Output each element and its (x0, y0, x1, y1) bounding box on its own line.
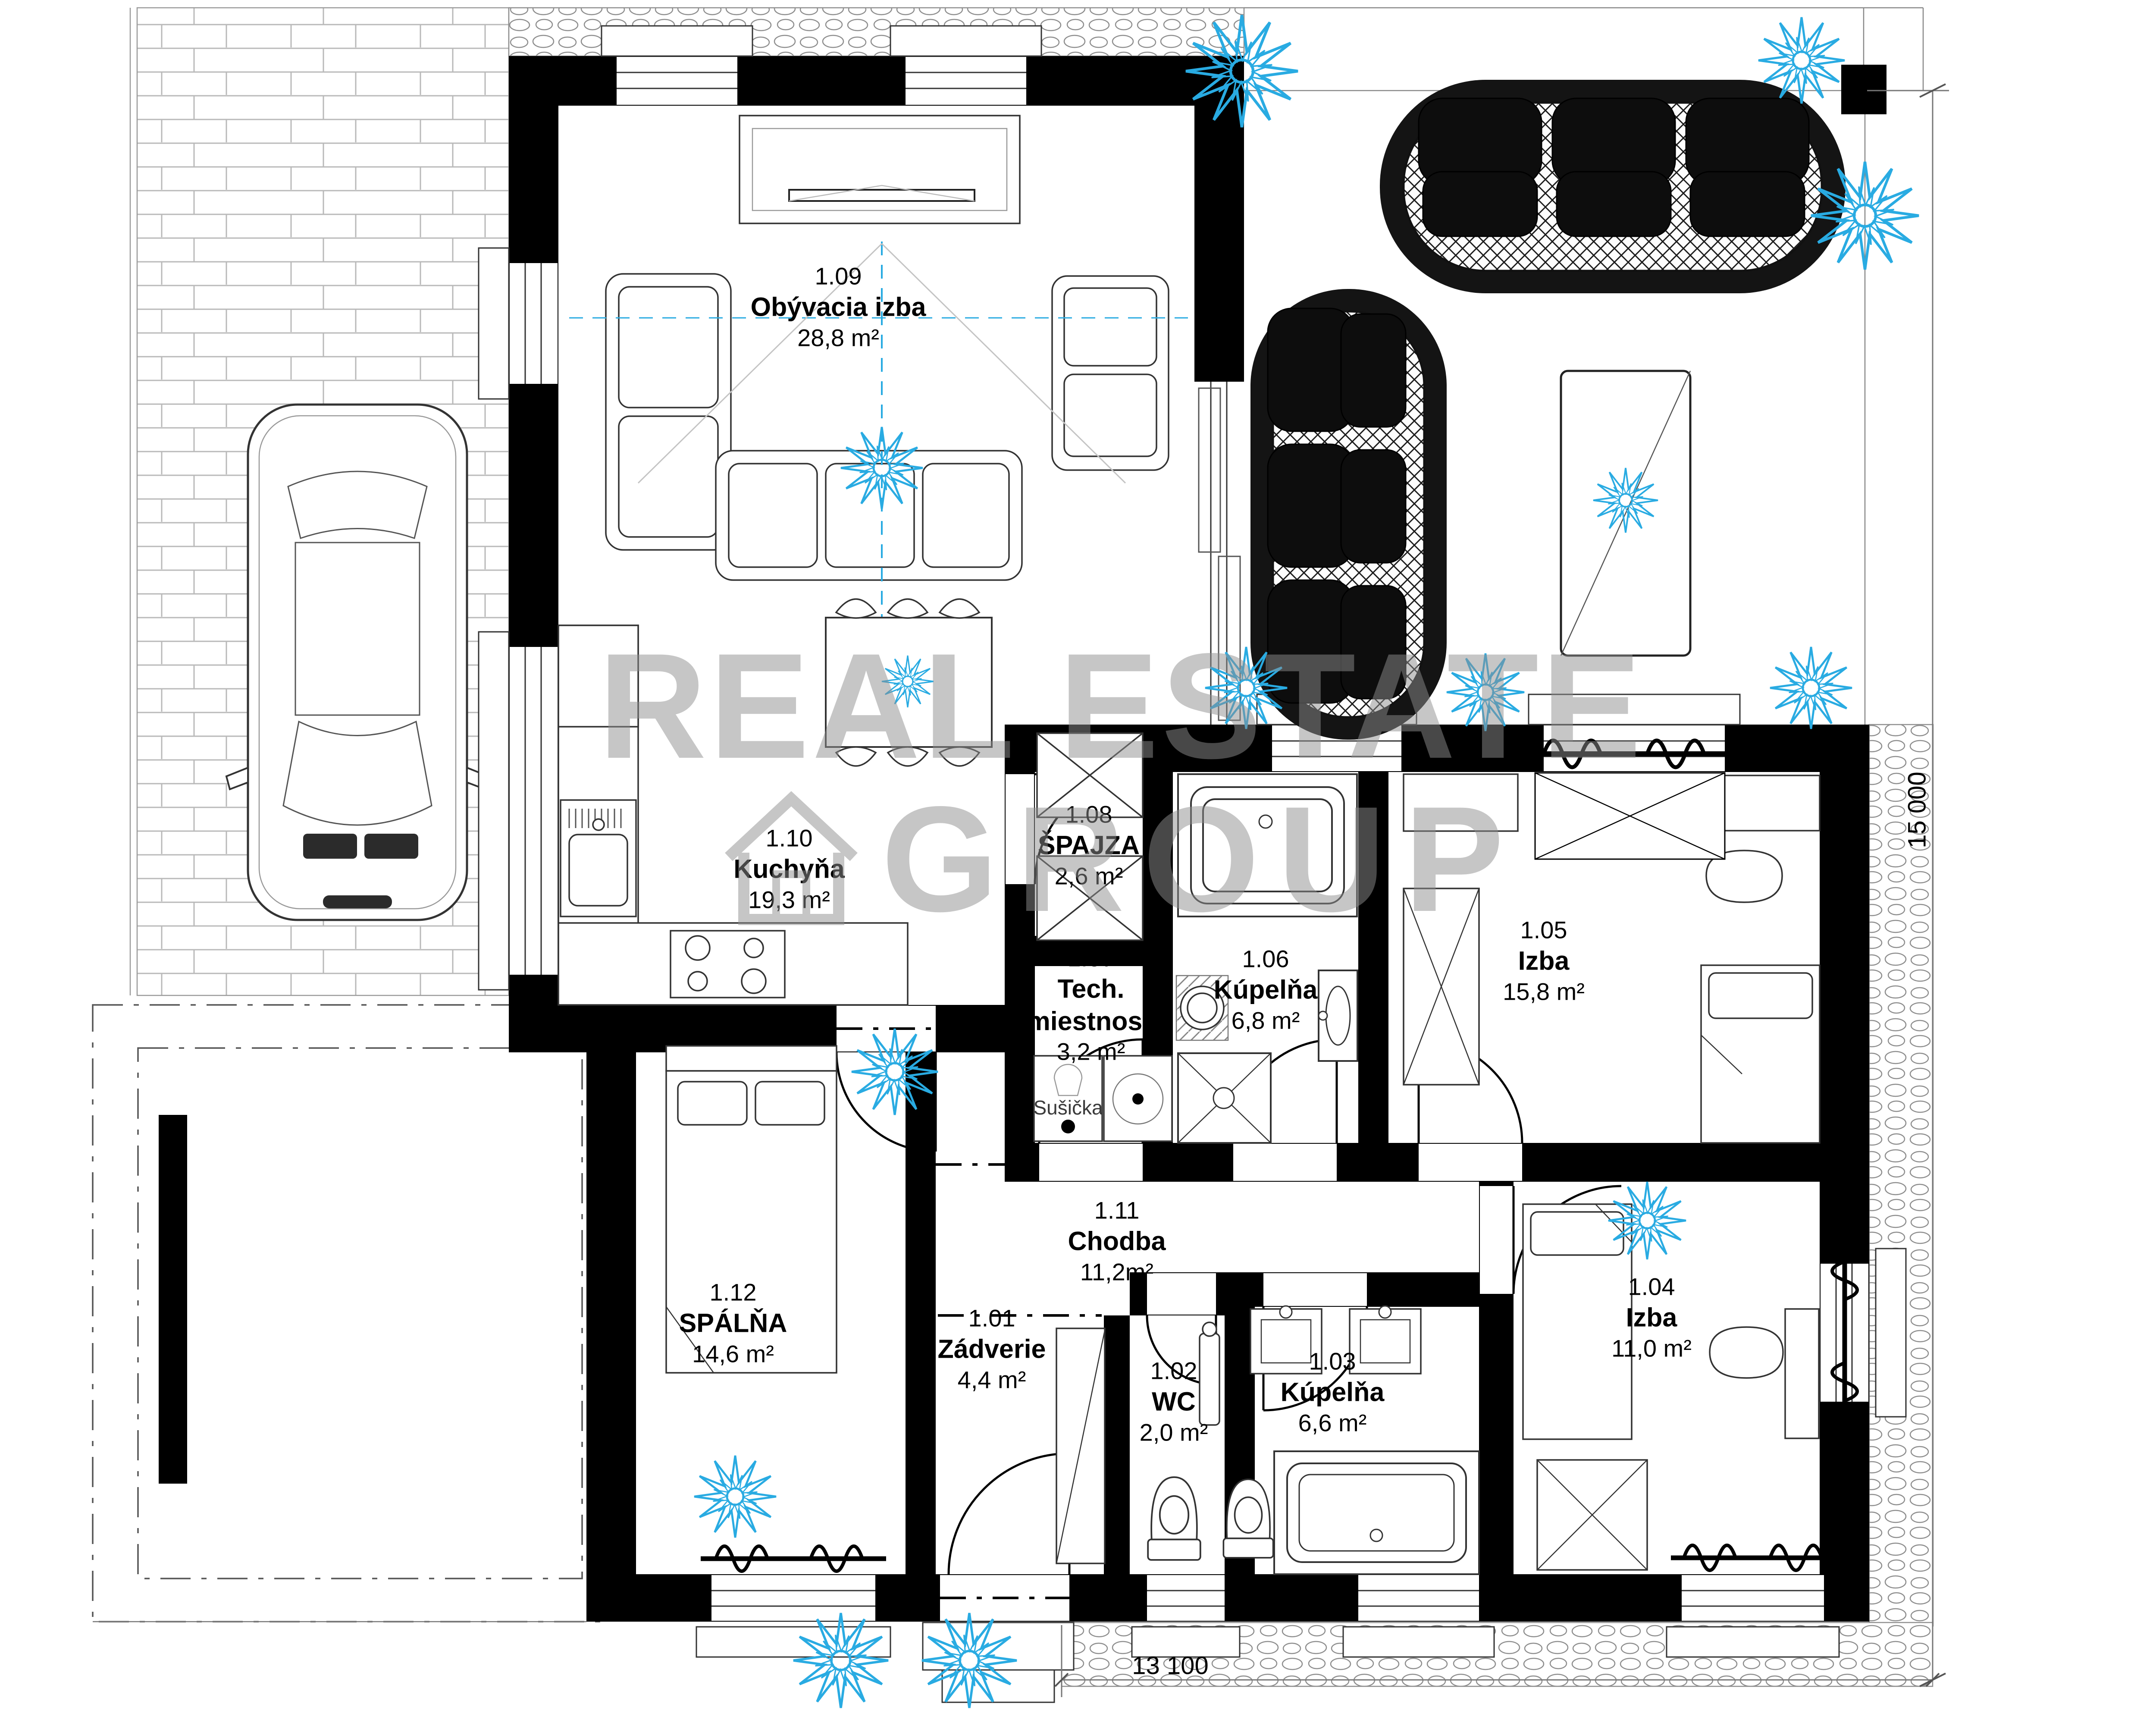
terrace-sofa-vertical (1250, 289, 1447, 740)
bathroom-106-fixtures (1178, 774, 1357, 1143)
wc-102-fixtures (1148, 1322, 1219, 1560)
deck-wall-segment (159, 1115, 187, 1484)
window-kitchen-west (479, 632, 558, 990)
pantry-shelves (1037, 733, 1143, 940)
floor-plan-drawing (0, 0, 2156, 1723)
izba-104-furniture (1523, 1204, 1819, 1570)
terrace-sofa-horizontal (1380, 80, 1846, 293)
window-izba105-north (1529, 694, 1740, 771)
window-living-north-2 (890, 26, 1041, 105)
curtain-izba104-south (1671, 1545, 1833, 1570)
curtain-spalna-south (701, 1546, 886, 1571)
bathroom-103-fixtures (1250, 1306, 1479, 1574)
window-living-north-1 (602, 26, 752, 105)
zadverie-closet (1056, 1328, 1105, 1563)
window-izba104-south (1667, 1575, 1839, 1657)
terrace-pillar (1841, 65, 1887, 114)
car (226, 405, 489, 920)
dining-set (826, 599, 992, 766)
terrace-coffee-table (1561, 371, 1690, 656)
window-wc-south (1132, 1575, 1240, 1657)
living-room-furniture (606, 116, 1169, 580)
window-bath103-south (1343, 1575, 1494, 1657)
spalna-furniture (666, 1046, 837, 1373)
window-living-west (479, 248, 558, 399)
